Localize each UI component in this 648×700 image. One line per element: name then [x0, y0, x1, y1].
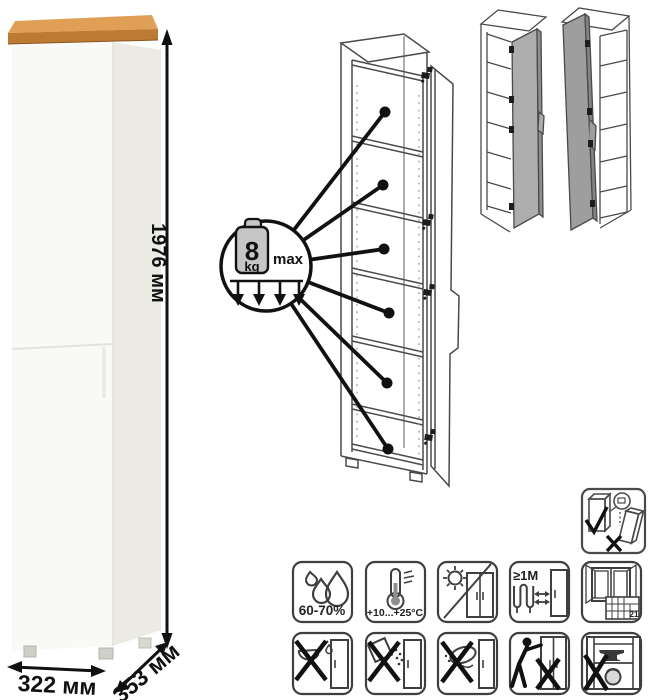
width-label: 322 мм — [17, 670, 97, 700]
load-qualifier: max — [273, 251, 304, 268]
cabinet-photo — [8, 15, 161, 659]
no-wet-sponge-icon — [438, 633, 497, 694]
shelf-load-callout: 8 kg max — [221, 107, 395, 455]
wall-anchor-icon — [582, 489, 645, 553]
calendar: 21 — [606, 597, 639, 619]
no-dragging-icon — [510, 633, 569, 694]
humidity-icon: 60-70% — [293, 562, 352, 622]
no-heavy-items-icon — [582, 633, 641, 694]
heat-distance-label: ≥1М — [513, 568, 538, 583]
no-direct-sunlight-icon — [438, 562, 497, 622]
height-label: 1976 мм — [147, 223, 169, 303]
variant-door-right-panel — [512, 29, 539, 228]
variant-door-right — [481, 10, 546, 232]
humidity-label: 60-70% — [299, 603, 346, 618]
temperature-label: +10...+25°C — [367, 607, 424, 619]
wood-top — [8, 15, 158, 44]
no-abrasive-powder-icon — [366, 633, 425, 694]
calendar-day: 21 — [630, 610, 639, 619]
heat-distance-icon: ≥1М — [510, 562, 569, 622]
product-sheet: 1976 мм 322 мм 353 мм — [0, 0, 648, 700]
variant-door-left — [562, 8, 631, 230]
no-liquids-icon — [293, 633, 352, 694]
open-cabinet-diagram — [341, 34, 459, 486]
ventilation-icon: 21 — [582, 562, 641, 622]
width-dimension: 322 мм — [7, 661, 106, 700]
load-unit: kg — [244, 259, 259, 274]
weight-icon: 8 kg — [236, 219, 268, 274]
care-icons-grid: 60-70% +10...+25°C — [293, 562, 641, 694]
temperature-icon: +10...+25°C — [366, 562, 425, 622]
